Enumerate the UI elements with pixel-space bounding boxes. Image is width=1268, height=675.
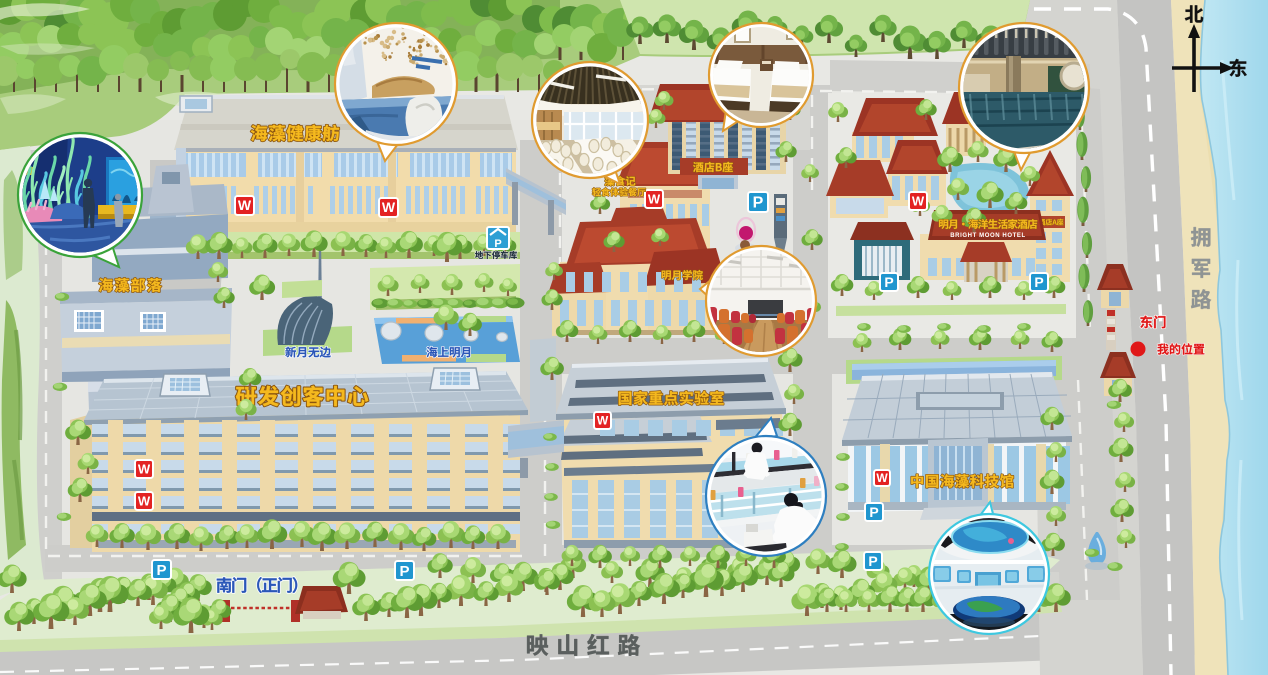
svg-text:BRIGHT MOON HOTEL: BRIGHT MOON HOTEL	[950, 233, 1026, 239]
svg-text:P: P	[884, 274, 893, 290]
svg-text:W: W	[912, 193, 925, 208]
svg-text:W: W	[648, 191, 661, 206]
svg-text:W: W	[876, 471, 888, 485]
svg-text:W: W	[138, 461, 151, 476]
svg-text:P: P	[1034, 274, 1043, 290]
svg-text:W: W	[138, 493, 151, 508]
svg-text:P: P	[399, 563, 409, 580]
svg-text:P: P	[753, 195, 764, 212]
svg-text:P: P	[494, 238, 501, 250]
svg-text:P: P	[869, 504, 878, 520]
svg-text:P: P	[868, 553, 877, 569]
svg-text:P: P	[156, 562, 166, 579]
svg-text:W: W	[382, 199, 396, 215]
svg-text:W: W	[597, 414, 609, 428]
svg-text:W: W	[238, 197, 252, 213]
